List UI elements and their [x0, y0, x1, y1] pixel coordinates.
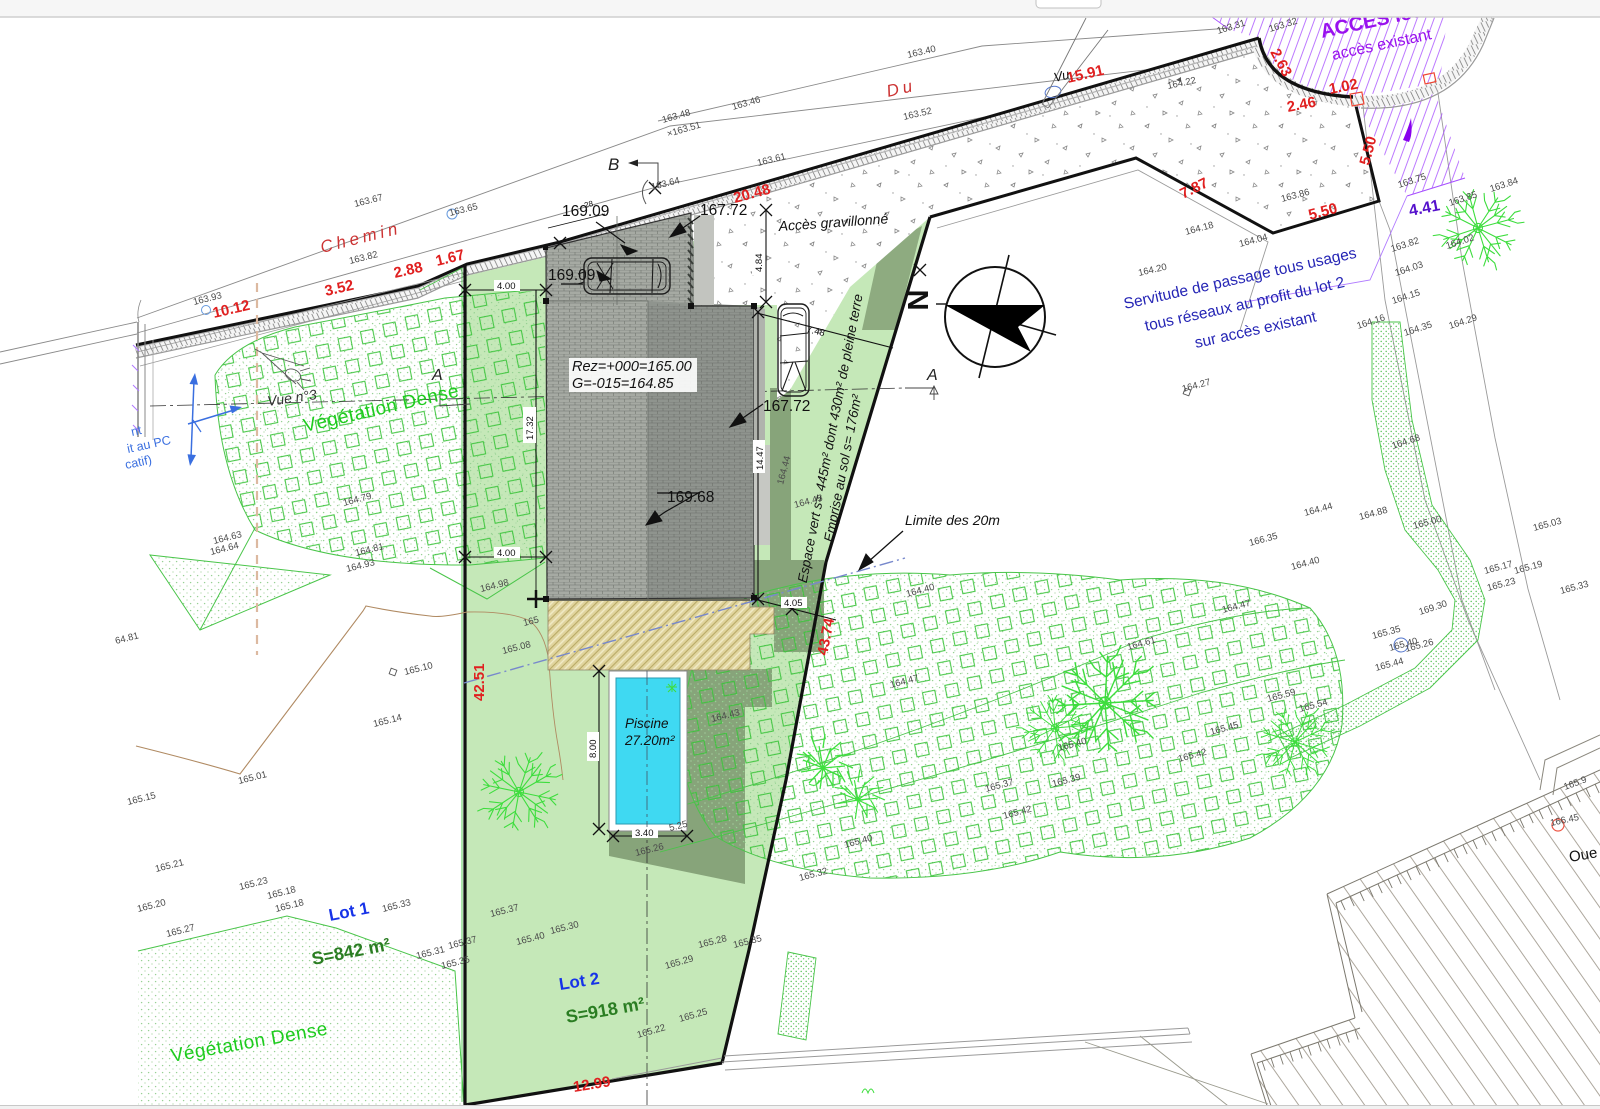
svg-text:Rez=+000=165.00: Rez=+000=165.00: [572, 359, 692, 375]
svg-text:17.32: 17.32: [525, 416, 536, 440]
svg-text:Limite des 20m: Limite des 20m: [905, 512, 1000, 528]
svg-text:169.09: 169.09: [548, 267, 595, 284]
svg-text:4.05: 4.05: [784, 598, 803, 609]
svg-text:167.72: 167.72: [763, 398, 810, 415]
svg-text:A: A: [926, 367, 938, 384]
svg-text:42.51: 42.51: [471, 663, 488, 701]
svg-text:167.72: 167.72: [700, 202, 747, 219]
svg-text:3.40: 3.40: [635, 828, 654, 839]
svg-text:14.47: 14.47: [755, 446, 766, 470]
svg-text:Piscine: Piscine: [625, 716, 669, 731]
svg-text:B: B: [608, 155, 619, 174]
svg-text:N: N: [903, 290, 935, 311]
svg-text:8.00: 8.00: [588, 740, 599, 759]
svg-text:G=-015=164.85: G=-015=164.85: [572, 376, 675, 392]
svg-text:4.00: 4.00: [497, 281, 516, 292]
svg-text:4.00: 4.00: [497, 548, 516, 559]
svg-text:A: A: [431, 367, 443, 384]
svg-text:27.20m²: 27.20m²: [624, 733, 675, 748]
svg-text:4.84: 4.84: [754, 254, 765, 273]
svg-text:169.68: 169.68: [667, 489, 714, 506]
